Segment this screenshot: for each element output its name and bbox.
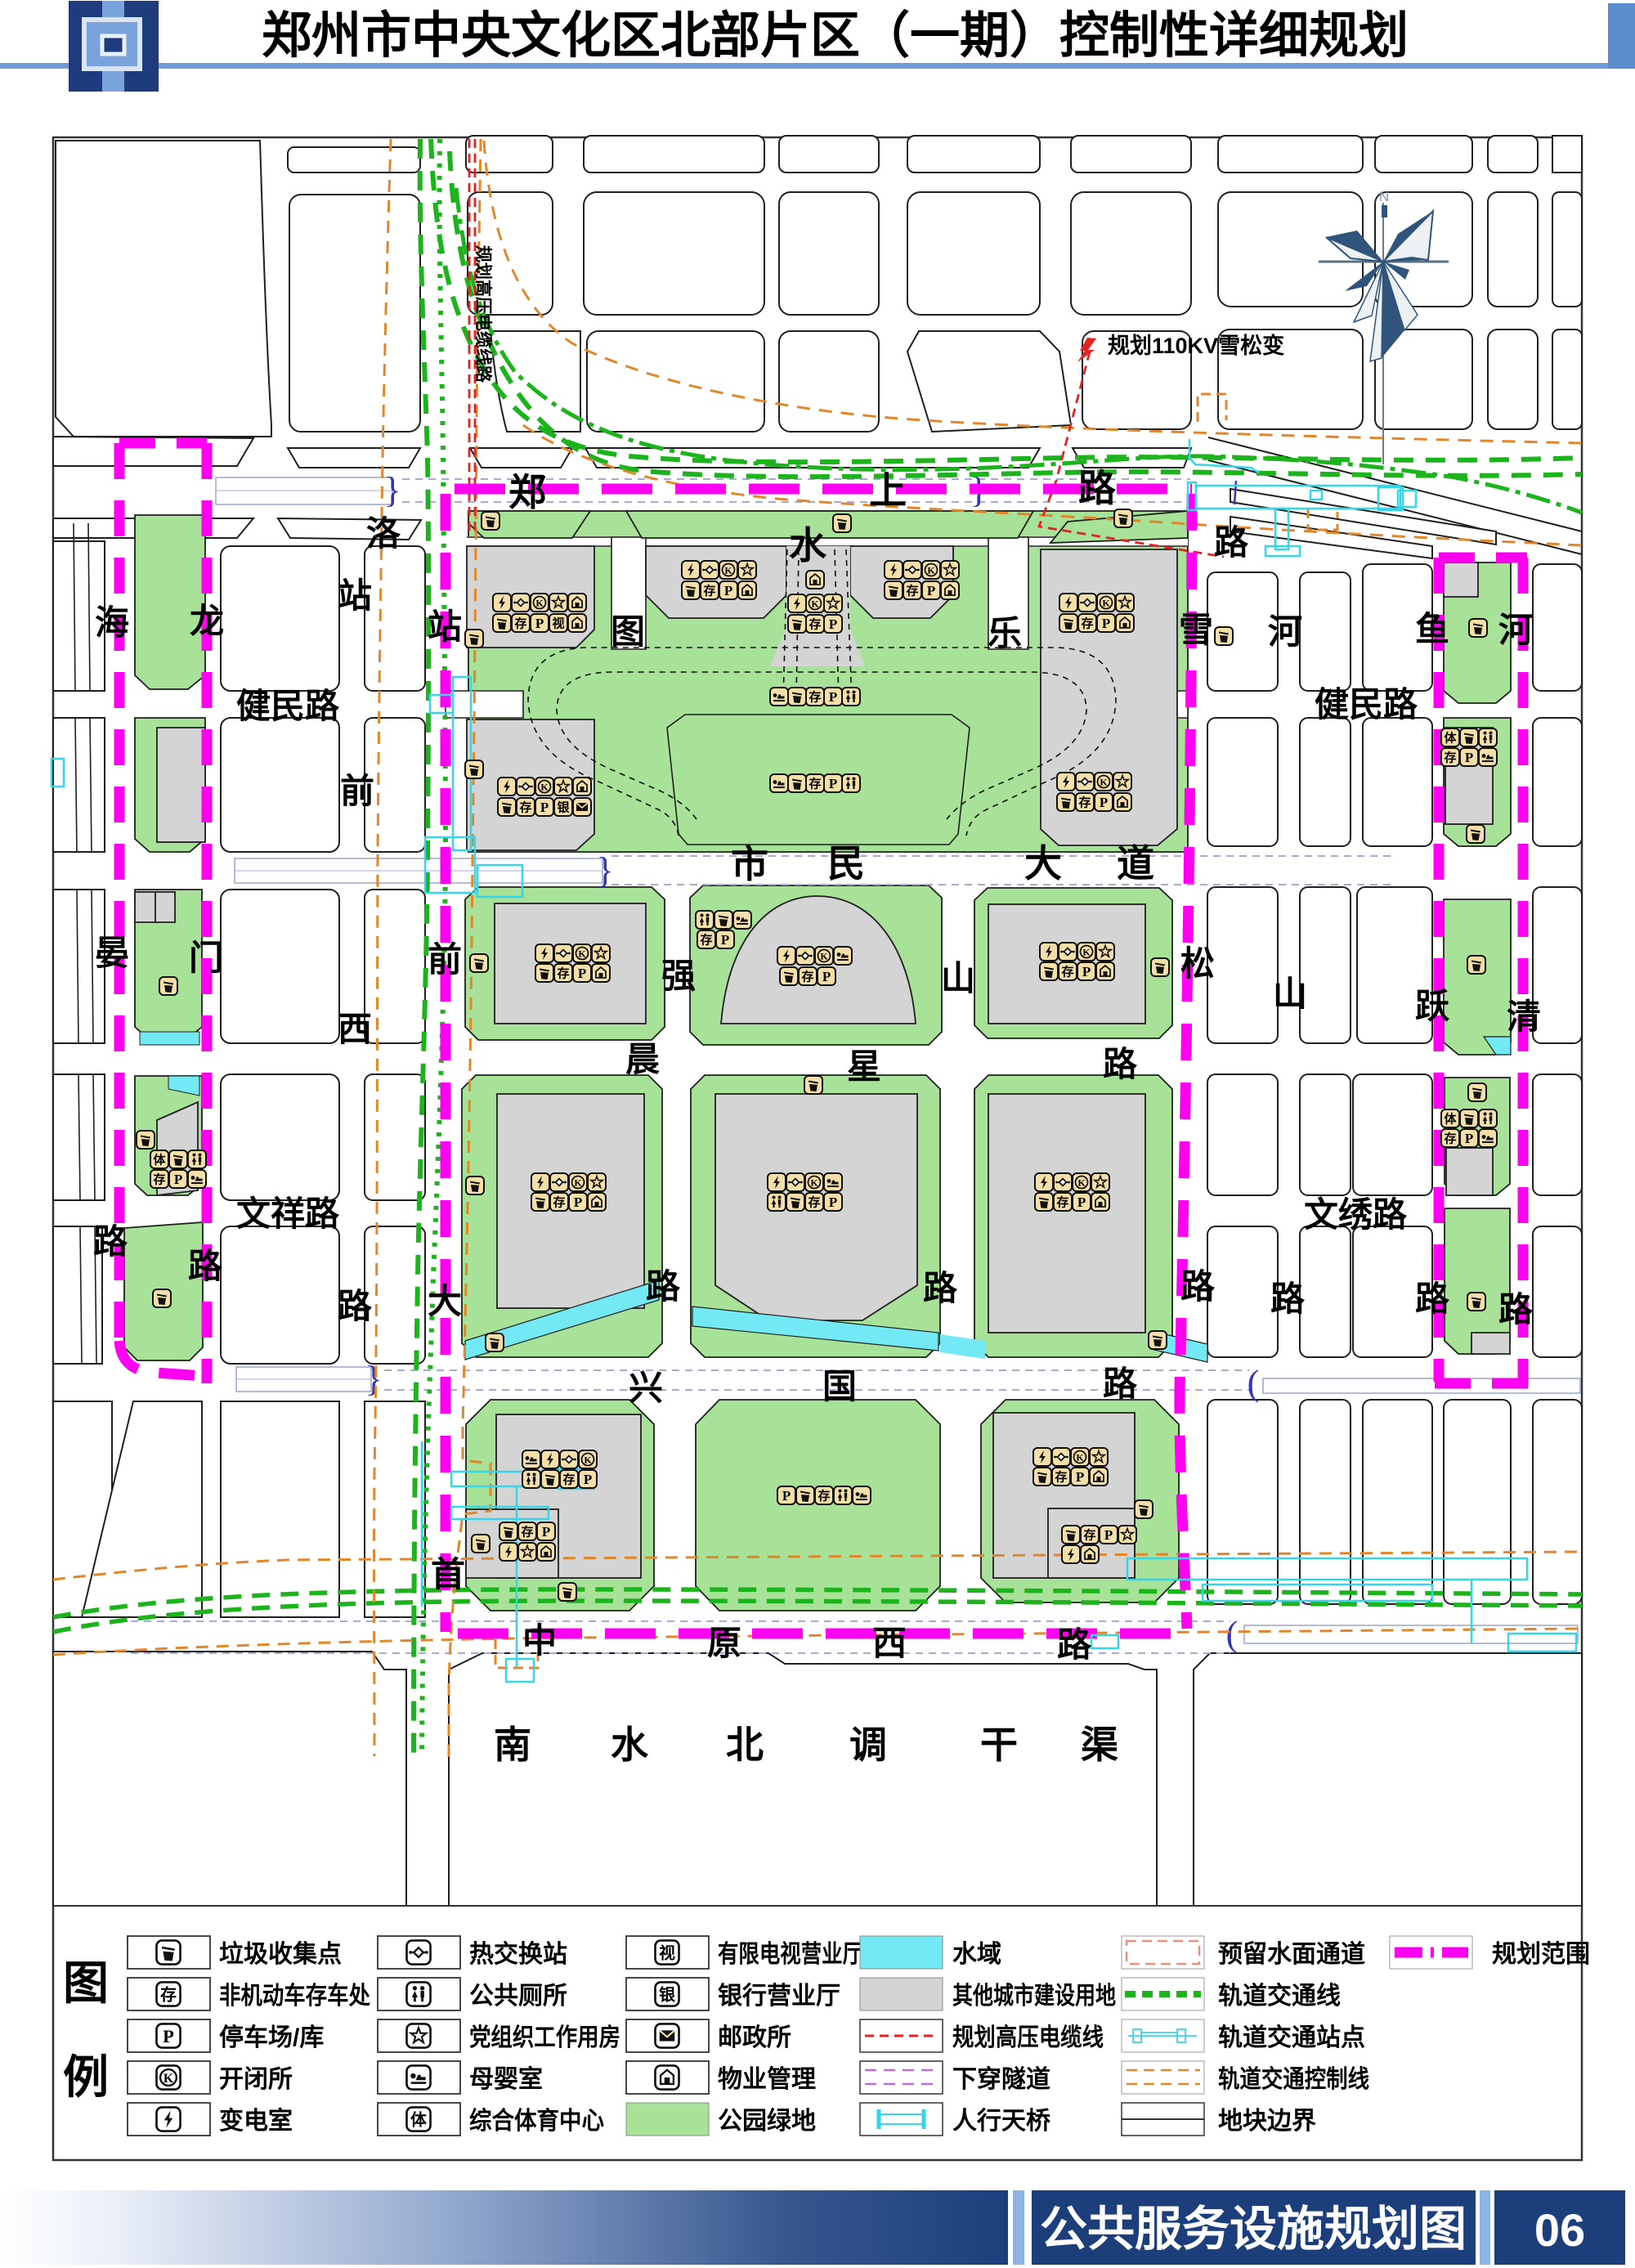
svg-text:06: 06	[1534, 2204, 1585, 2256]
svg-text:有限电视营业厅: 有限电视营业厅	[718, 1941, 863, 1968]
svg-text:大: 大	[428, 1282, 462, 1320]
svg-text:水: 水	[789, 524, 827, 567]
svg-text:开闭所: 开闭所	[219, 2066, 293, 2093]
svg-text:调: 调	[849, 1723, 887, 1766]
svg-text:郑州市中央文化区北部片区（一期）控制性详细规划: 郑州市中央文化区北部片区（一期）控制性详细规划	[262, 7, 1409, 63]
svg-text:图: 图	[611, 612, 645, 651]
svg-text:物业管理: 物业管理	[718, 2066, 816, 2093]
svg-text:轨道交通站点: 轨道交通站点	[1218, 2024, 1365, 2051]
svg-text:轨道交通控制线: 轨道交通控制线	[1218, 2065, 1369, 2093]
svg-text:河: 河	[1498, 611, 1533, 649]
svg-text:}: }	[365, 1359, 382, 1399]
svg-text:路: 路	[1498, 1290, 1534, 1329]
svg-text:乐: 乐	[988, 614, 1022, 652]
svg-text:文祥路: 文祥路	[236, 1195, 340, 1233]
svg-text:松: 松	[1180, 944, 1215, 983]
svg-text:中: 中	[522, 1621, 557, 1660]
svg-text:路: 路	[1415, 1280, 1450, 1318]
svg-text:渠: 渠	[1081, 1723, 1118, 1766]
svg-text:清: 清	[1507, 997, 1541, 1036]
svg-text:轨道交通线: 轨道交通线	[1218, 1982, 1341, 2010]
svg-text:变电室: 变电室	[219, 2107, 293, 2135]
svg-text:北: 北	[726, 1723, 764, 1766]
svg-text:规划高压电缆线路: 规划高压电缆线路	[473, 245, 493, 383]
svg-text:兴: 兴	[629, 1369, 663, 1407]
svg-text:路: 路	[1103, 1045, 1138, 1083]
svg-text:党组织工作用房: 党组织工作用房	[469, 2024, 620, 2051]
svg-text:大: 大	[1024, 842, 1062, 885]
svg-text:N: N	[1379, 189, 1389, 204]
svg-text:路: 路	[1057, 1625, 1092, 1664]
svg-text:}: }	[596, 850, 613, 890]
svg-text:例: 例	[63, 2051, 109, 2103]
svg-text:综合体育中心: 综合体育中心	[469, 2107, 604, 2135]
svg-text:公园绿地: 公园绿地	[718, 2108, 816, 2135]
svg-text:前: 前	[340, 772, 374, 810]
svg-text:路: 路	[1214, 523, 1249, 562]
svg-text:星: 星	[847, 1047, 881, 1086]
svg-text:民: 民	[827, 842, 865, 885]
svg-text:原: 原	[707, 1624, 741, 1662]
svg-text:市: 市	[731, 843, 768, 885]
svg-text:站: 站	[338, 576, 372, 615]
svg-text:其他城市建设用地: 其他城市建设用地	[952, 1982, 1116, 2010]
svg-text:西: 西	[872, 1624, 907, 1662]
svg-text:地块边界: 地块边界	[1218, 2108, 1316, 2135]
svg-text:鱼: 鱼	[1415, 610, 1449, 648]
svg-text:站: 站	[428, 607, 462, 646]
svg-text:山: 山	[1273, 975, 1307, 1013]
svg-text:河: 河	[1268, 612, 1302, 651]
svg-text:路: 路	[338, 1287, 373, 1325]
svg-text:路: 路	[923, 1269, 958, 1307]
svg-text:路: 路	[93, 1222, 128, 1261]
svg-text:公共厕所: 公共厕所	[469, 1983, 567, 2010]
svg-text:(: (	[1226, 1614, 1239, 1654]
svg-text:路: 路	[1180, 1267, 1216, 1306]
svg-text:健民路: 健民路	[236, 687, 340, 725]
svg-text:路: 路	[1103, 1365, 1138, 1403]
svg-text:图: 图	[63, 1957, 109, 2009]
svg-text:路: 路	[646, 1267, 681, 1306]
svg-text:路: 路	[1078, 467, 1117, 509]
svg-text:道: 道	[1117, 842, 1154, 885]
svg-text:停车场/库: 停车场/库	[219, 2024, 324, 2051]
svg-text:雪: 雪	[1179, 611, 1213, 649]
svg-text:银行营业厅: 银行营业厅	[718, 1983, 840, 2010]
svg-text:文绣路: 文绣路	[1304, 1195, 1408, 1234]
svg-text:(: (	[1248, 1363, 1260, 1403]
svg-text:人行天桥: 人行天桥	[952, 2108, 1050, 2135]
svg-text:跃: 跃	[1415, 987, 1450, 1025]
svg-text:}: }	[383, 470, 401, 510]
svg-text:规划范围: 规划范围	[1492, 1941, 1590, 1968]
svg-text:规划高压电缆线: 规划高压电缆线	[952, 2024, 1104, 2051]
svg-text:洛: 洛	[366, 514, 401, 553]
svg-text:邮政所: 邮政所	[718, 2024, 791, 2051]
svg-text:西: 西	[338, 1010, 372, 1048]
svg-text:海: 海	[95, 603, 129, 642]
svg-text:路: 路	[188, 1247, 223, 1285]
svg-text:强: 强	[661, 957, 696, 995]
svg-text:国: 国	[822, 1367, 857, 1405]
svg-text:门: 门	[189, 939, 223, 977]
svg-text:母婴室: 母婴室	[469, 2065, 543, 2093]
svg-text:预留水面通道: 预留水面通道	[1218, 1941, 1365, 1968]
svg-text:非机动车存车处: 非机动车存车处	[219, 1982, 370, 2010]
svg-text:龙: 龙	[190, 602, 224, 640]
svg-text:上: 上	[869, 469, 907, 512]
svg-text:热交换站: 热交换站	[469, 1940, 567, 1968]
svg-text:公共服务设施规划图: 公共服务设施规划图	[1040, 2203, 1467, 2256]
svg-text:山: 山	[941, 959, 975, 997]
svg-text:晨: 晨	[625, 1040, 660, 1078]
svg-text:水: 水	[611, 1723, 649, 1766]
svg-text:下穿隧道: 下穿隧道	[952, 2065, 1050, 2093]
svg-text:规划110KV雪松变: 规划110KV雪松变	[1108, 333, 1284, 358]
svg-text:南: 南	[494, 1723, 531, 1766]
svg-text:水域: 水域	[952, 1941, 1001, 1968]
svg-text:路: 路	[1270, 1280, 1306, 1318]
svg-text:首: 首	[431, 1555, 465, 1593]
svg-text:干: 干	[980, 1723, 1018, 1766]
svg-text:垃圾收集点: 垃圾收集点	[219, 1940, 342, 1968]
svg-text:健民路: 健民路	[1315, 685, 1418, 724]
svg-text:晏: 晏	[95, 934, 129, 972]
svg-text:郑: 郑	[508, 471, 546, 513]
svg-text:前: 前	[428, 940, 462, 979]
